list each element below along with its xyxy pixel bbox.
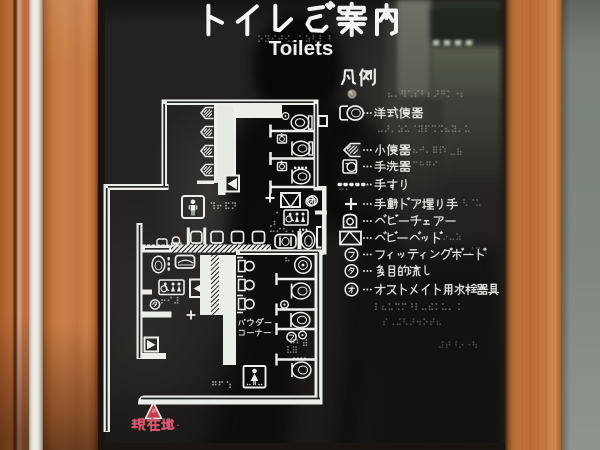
svg-text:Toilets: Toilets [269,37,334,60]
